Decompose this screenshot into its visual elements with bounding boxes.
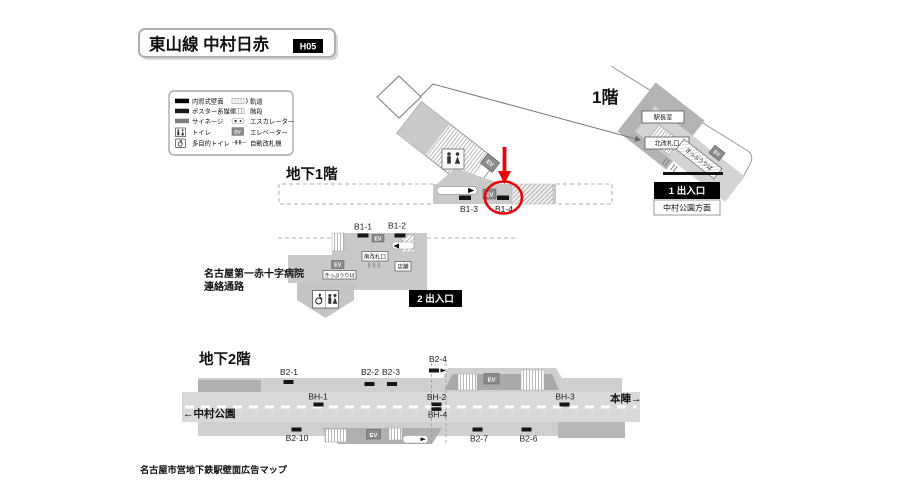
station-office-label: 駅長室 <box>654 114 673 122</box>
ad-label-b2-7: B2-7 <box>470 434 488 444</box>
b2-lower-structure: EV <box>322 428 442 444</box>
stairs-icon <box>232 109 244 114</box>
legend-label: サイネージ <box>192 117 223 125</box>
map-caption: 名古屋市営地下鉄駅壁面広告マップ <box>140 464 288 475</box>
ad-panel-b2-7 <box>473 428 483 432</box>
ad-panel-b2-10 <box>292 428 302 432</box>
b1-stairs-north <box>332 233 344 251</box>
poster-media-icon <box>175 109 189 114</box>
line-code: H05 <box>300 42 317 52</box>
b1-toilet <box>442 149 464 169</box>
ad-panel-bh-3 <box>560 403 570 407</box>
ad-label-bh-3: BH-3 <box>555 392 575 402</box>
ticket-gate-marks <box>671 164 678 171</box>
b2-upper-block <box>198 380 261 392</box>
ad-label-b2-3: B2-3 <box>382 367 400 377</box>
north-gate-label: 北改札口 <box>655 140 680 148</box>
station-ad-map: 東山線 中村日赤 H05 内照式壁面 ポスター系媒体 サイネージ トイレ 多目的… <box>0 0 919 491</box>
ad-panel-bh-2 <box>432 403 442 407</box>
exit2-label: 2 出入口 <box>417 293 453 305</box>
b1-concourse-elevator-west: EV <box>332 261 345 269</box>
ad-panel-bh-1 <box>314 403 324 407</box>
south-gate-label: 南改札口 <box>364 252 386 260</box>
b1-ticket-office-label: きっぷうりば <box>324 272 354 279</box>
legend-label: エスカレーター <box>250 116 294 125</box>
ad-label-b2-6: B2-6 <box>520 434 538 444</box>
elevator-icon: EV <box>232 128 244 136</box>
legend-label: 自動改札機 <box>250 138 282 147</box>
ad-label-b1-2: B1-2 <box>388 221 406 231</box>
accessible-toilet-icon <box>176 139 186 148</box>
direction-honjin: 本陣→ <box>610 392 642 405</box>
title-bar: 東山線 中村日赤 H05 <box>139 29 338 60</box>
exit1-label: 1 出入口 <box>669 185 705 197</box>
ad-panel-b2-6 <box>522 428 532 432</box>
ad-label-b1-1: B1-1 <box>354 222 372 232</box>
highlight-arrow <box>498 147 511 184</box>
legend: 内照式壁面 ポスター系媒体 サイネージ トイレ 多目的トイレ EV 軌道 階段 … <box>169 91 294 155</box>
b1-concourse-elevator-north: EV <box>372 235 384 243</box>
toilet-icon <box>176 128 186 137</box>
legend-label: ポスター系媒体 <box>192 106 237 115</box>
ad-panel-b1-2 <box>395 234 406 238</box>
b1-corridor-dashed-left <box>279 184 433 204</box>
escalator-icon <box>232 119 244 124</box>
ad-label-b2-10: B2-10 <box>286 433 309 443</box>
ad-panel-b2-4 <box>429 369 439 373</box>
hospital-label-line2: 連絡通路 <box>204 280 245 293</box>
direction-arrow <box>441 369 447 373</box>
b2-lower-ev-label: EV <box>370 433 378 439</box>
b2-heading: 地下2階 <box>199 350 251 368</box>
legend-label: 内照式壁面 <box>192 96 223 105</box>
ad-label-bh-4: BH-4 <box>428 410 448 420</box>
elevator-icon-label: EV <box>234 129 241 135</box>
signage-icon <box>175 119 189 124</box>
ad-label-b2-2: B2-2 <box>361 367 379 377</box>
b2-mezz-ev-label: EV <box>488 377 496 383</box>
shop-label: 店舗 <box>397 262 409 270</box>
floor1-heading: 1階 <box>592 88 618 107</box>
ad-label-b2-4: B2-4 <box>429 354 447 364</box>
b1-ev-label: EV <box>375 236 382 242</box>
ad-panel-b1-3 <box>459 196 471 201</box>
direction-nakamura-koen: ←中村公園 <box>183 407 236 420</box>
ad-panel-b1-4 <box>497 196 509 201</box>
ad-panel-b1-1 <box>358 234 369 238</box>
ad-panel-b2-1 <box>284 380 294 384</box>
b1-concourse-escalator <box>392 242 414 249</box>
b2-map: 地下2階 EV EV <box>182 350 642 444</box>
legend-label: エレベーター <box>250 127 288 136</box>
b1-heading: 地下1階 <box>286 165 338 183</box>
b1-ev-label: EV <box>334 263 341 269</box>
b1-toilets <box>313 291 339 309</box>
ad-label-bh-2: BH-2 <box>427 392 447 402</box>
ad-panel-b2-2 <box>365 382 375 386</box>
page-title: 東山線 中村日赤 <box>149 34 270 54</box>
lit-wall-icon <box>175 99 189 104</box>
legend-label: トイレ <box>192 129 211 136</box>
ad-label-bh-1: BH-1 <box>308 392 328 402</box>
ad-panel-b2-3 <box>387 382 397 386</box>
b1-corridor-dashed-right <box>556 184 612 204</box>
b1-escalator <box>437 187 477 195</box>
legend-label: 軌道 <box>250 96 263 105</box>
exit1-direction-label: 中村公園方面 <box>663 203 711 213</box>
ad-label-b1-3: B1-3 <box>460 204 478 214</box>
legend-label: 多目的トイレ <box>192 138 230 147</box>
b2-mezzanine: EV <box>436 368 570 392</box>
ad-label-b2-1: B2-1 <box>280 367 298 377</box>
legend-label: 階段 <box>250 106 263 115</box>
b2-lower-block <box>558 422 625 438</box>
hospital-label-line1: 名古屋第一赤十字病院 <box>204 267 304 280</box>
